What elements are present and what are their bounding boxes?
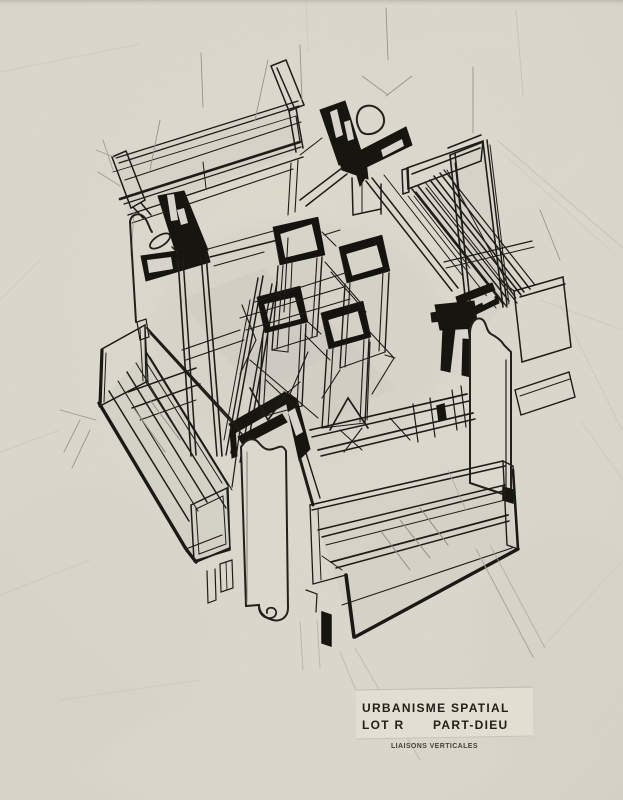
svg-text:URBANISME SPATIAL: URBANISME SPATIAL — [362, 701, 510, 715]
svg-text:LIAISONS VERTICALES: LIAISONS VERTICALES — [391, 743, 478, 750]
svg-text:PART-DIEU: PART-DIEU — [433, 718, 508, 732]
svg-text:LOT R: LOT R — [362, 718, 405, 732]
